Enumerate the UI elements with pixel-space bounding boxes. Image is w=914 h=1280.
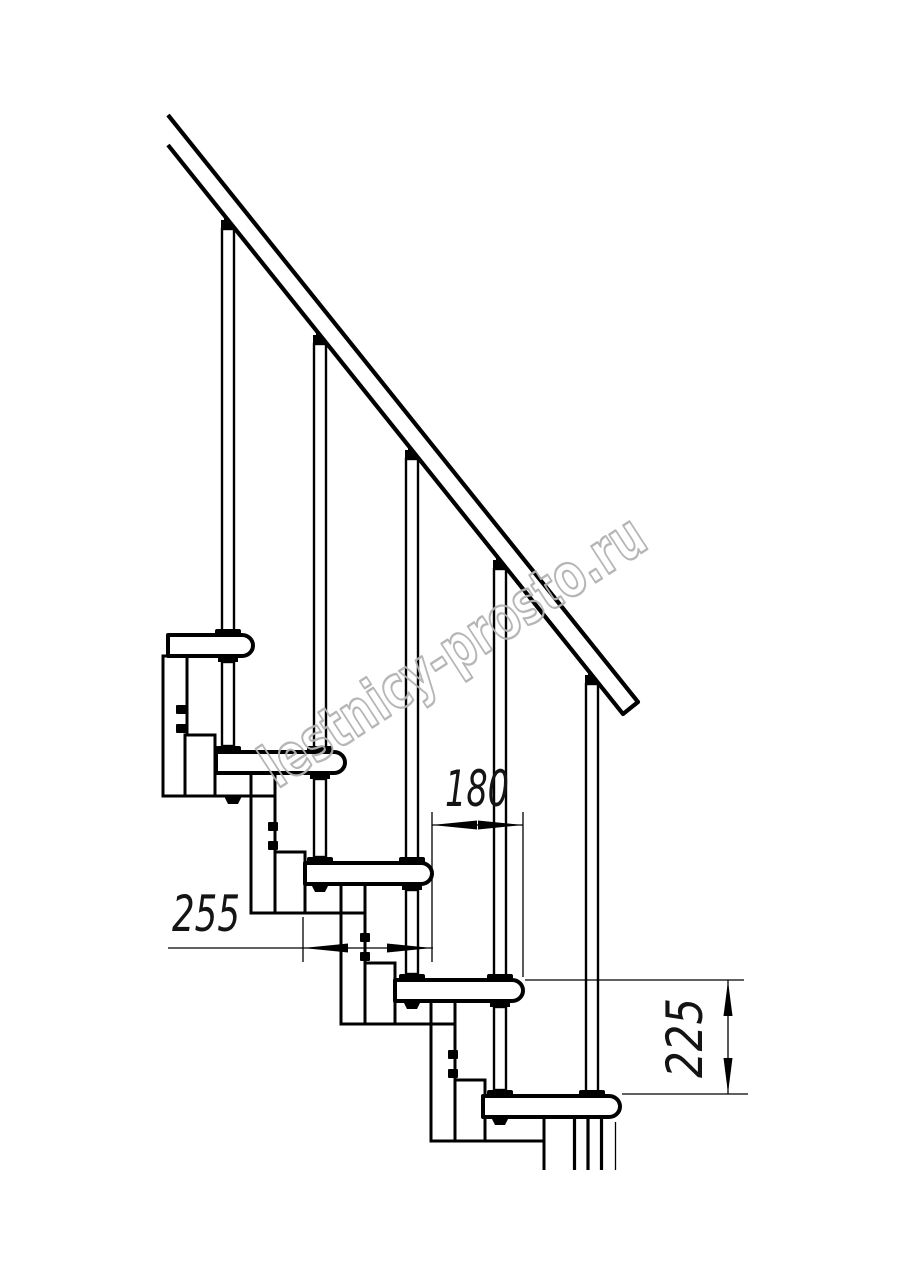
dimension-label-tread-depth: 255 (172, 885, 240, 943)
bolt-icon (448, 1069, 458, 1078)
support-pipe (222, 662, 234, 746)
support-pipe (494, 1007, 506, 1090)
baluster-bottom-collar (399, 857, 425, 864)
bolt-icon (268, 841, 278, 850)
nut-icon (491, 1117, 509, 1125)
bracket-box (275, 852, 305, 913)
tread-5 (483, 1096, 620, 1117)
bracket-box (185, 735, 215, 796)
bolt-icon (176, 705, 186, 714)
handrail (168, 115, 638, 714)
stair-elevation-drawing: 180 255 225 lestnicy-prosto.ru (0, 0, 914, 1280)
tread-4 (395, 980, 523, 1001)
dimension-label-step-rise: 225 (656, 998, 714, 1078)
handrail-bottom-edge (168, 145, 623, 714)
dimension-step-run-180: 180 (432, 760, 523, 977)
nut-icon (224, 796, 242, 804)
nut-icon (403, 1001, 421, 1009)
bolt-icon (268, 822, 278, 831)
tread-1 (168, 635, 253, 656)
baluster-bottom-collar (215, 629, 241, 636)
baluster-5 (586, 684, 598, 1096)
stair-drawing-page: 180 255 225 lestnicy-prosto.ru (0, 0, 914, 1280)
bracket-box (455, 1080, 485, 1141)
bolt-icon (360, 952, 370, 961)
baluster-bottom-collar (487, 974, 513, 981)
bracket-box (365, 963, 395, 1024)
dimension-step-rise-225: 225 (525, 980, 748, 1094)
baluster-bottom-collar (579, 1090, 605, 1097)
arrow-down-icon (724, 1058, 733, 1093)
baluster-2 (314, 344, 326, 752)
arrow-left-icon (303, 944, 348, 953)
support-pipe (314, 779, 326, 857)
baluster-1 (222, 229, 234, 635)
arrow-left-icon (432, 821, 477, 830)
arrow-up-icon (724, 981, 733, 1016)
bolt-icon (360, 933, 370, 942)
bolt-icon (176, 724, 186, 733)
nut-icon (311, 884, 329, 892)
dimension-label-step-run: 180 (445, 760, 509, 818)
support-pipe (406, 890, 418, 974)
tread-3 (305, 863, 432, 884)
bolt-icon (448, 1050, 458, 1059)
